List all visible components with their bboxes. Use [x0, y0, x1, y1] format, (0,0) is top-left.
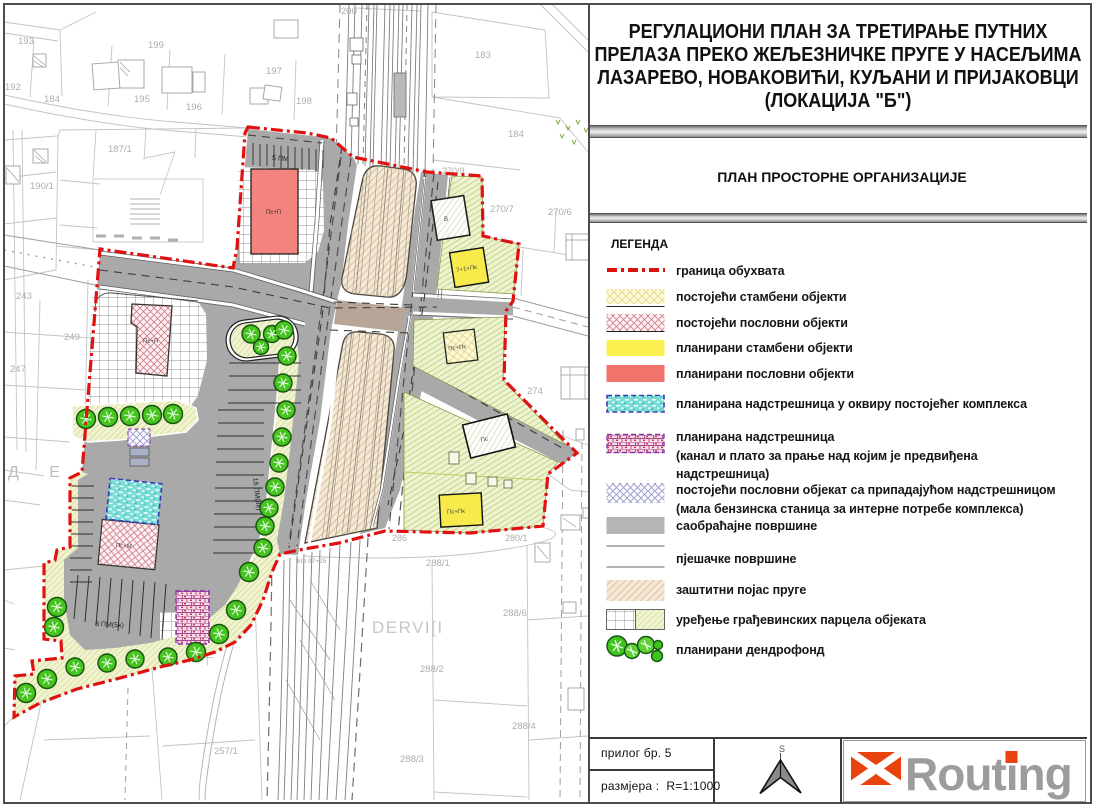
svg-text:S: S	[779, 744, 785, 754]
svg-text:Routıng: Routıng	[905, 748, 1072, 800]
